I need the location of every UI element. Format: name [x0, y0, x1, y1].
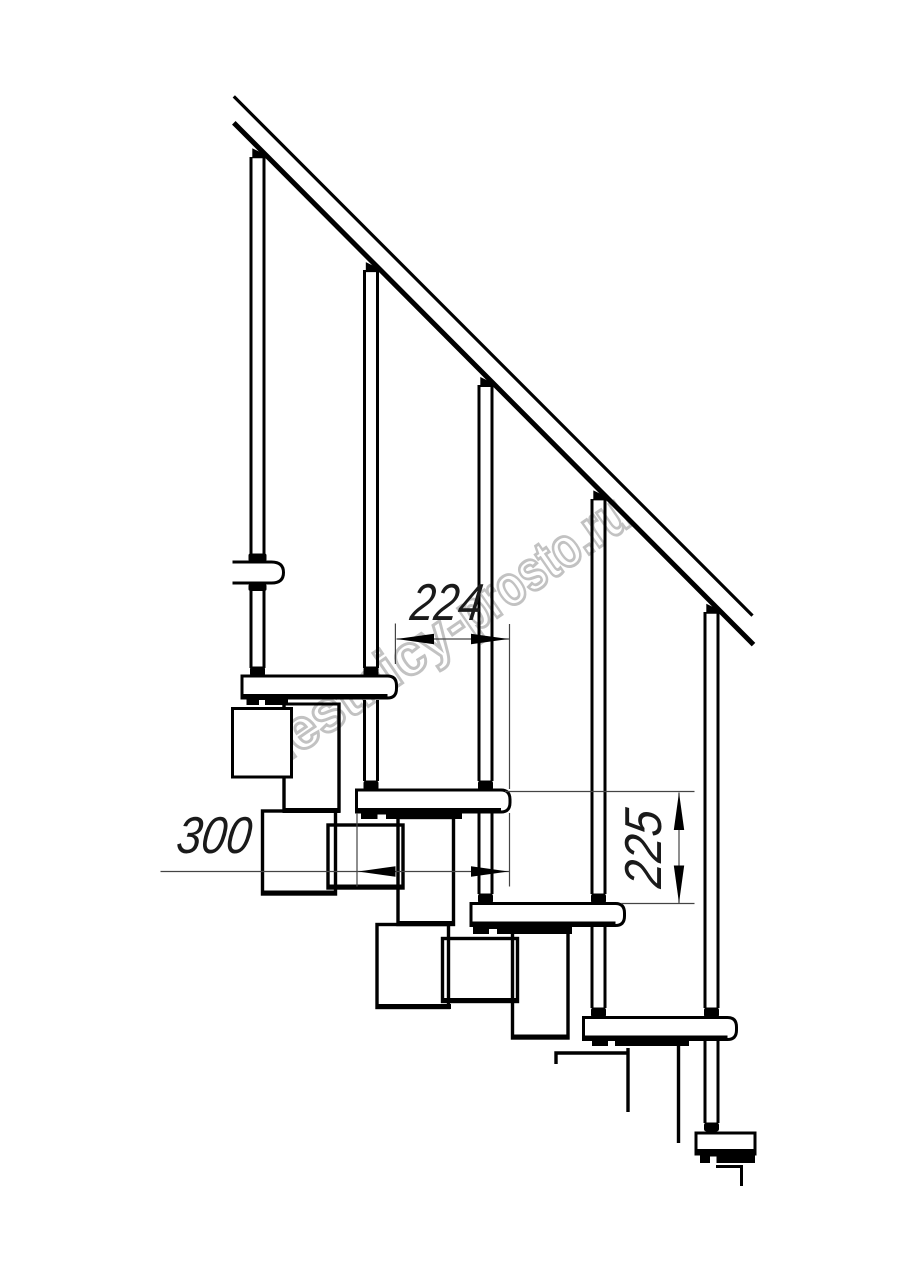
svg-text:300: 300: [173, 807, 255, 865]
svg-text:225: 225: [615, 805, 673, 892]
svg-text:224: 224: [407, 574, 487, 632]
